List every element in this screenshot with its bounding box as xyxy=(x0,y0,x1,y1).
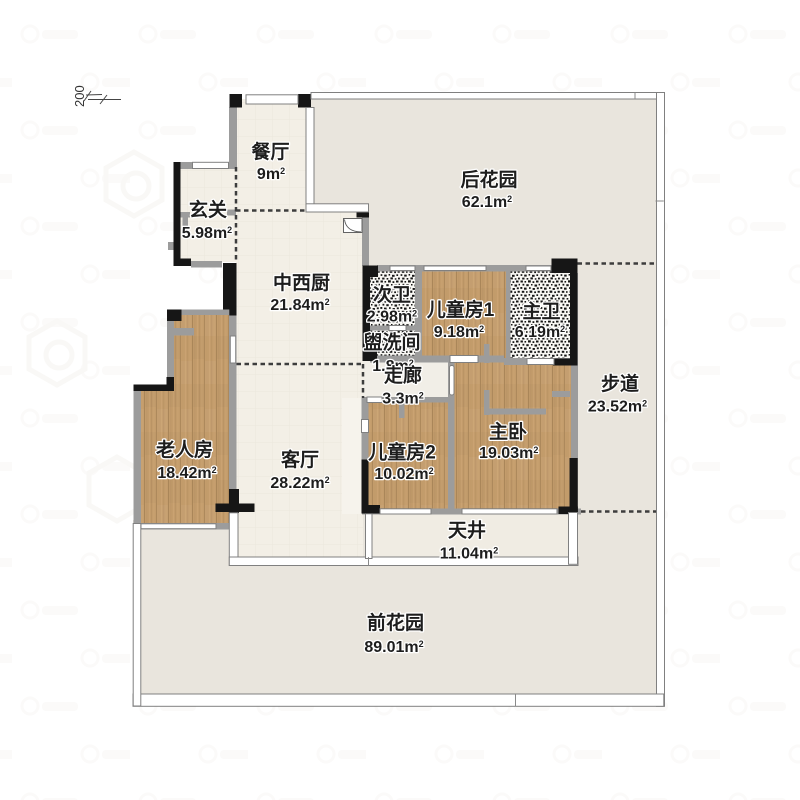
svg-text:28.22m2: 28.22m2 xyxy=(270,475,329,492)
svg-text:玄关: 玄关 xyxy=(189,198,227,221)
svg-text:步道: 步道 xyxy=(601,372,639,395)
svg-text:次卫: 次卫 xyxy=(373,283,411,306)
svg-text:走廊: 走廊 xyxy=(384,364,422,387)
svg-text:老人房: 老人房 xyxy=(156,438,213,461)
svg-text:主卧: 主卧 xyxy=(489,421,527,443)
svg-text:9.18m2: 9.18m2 xyxy=(434,324,484,341)
svg-text:3.3m2: 3.3m2 xyxy=(382,391,424,408)
svg-text:后花园: 后花园 xyxy=(460,168,517,191)
svg-text:6.19m2: 6.19m2 xyxy=(515,324,565,341)
svg-text:10.02m2: 10.02m2 xyxy=(374,466,433,483)
svg-text:中西厨: 中西厨 xyxy=(273,271,330,294)
svg-text:前花园: 前花园 xyxy=(367,611,424,634)
svg-text:19.03m2: 19.03m2 xyxy=(479,445,538,462)
svg-text:儿童房1: 儿童房1 xyxy=(426,298,495,321)
svg-text:2.98m2: 2.98m2 xyxy=(367,309,417,326)
svg-text:21.84m2: 21.84m2 xyxy=(270,297,329,314)
svg-text:200: 200 xyxy=(72,85,87,107)
svg-text:89.01m2: 89.01m2 xyxy=(364,639,423,656)
svg-text:盥洗间: 盥洗间 xyxy=(363,331,420,354)
svg-text:主卫: 主卫 xyxy=(522,301,560,323)
svg-text:23.52m2: 23.52m2 xyxy=(588,399,647,416)
svg-text:餐厅: 餐厅 xyxy=(251,140,289,163)
svg-text:客厅: 客厅 xyxy=(281,448,319,471)
svg-text:儿童房2: 儿童房2 xyxy=(367,441,436,464)
svg-text:5.98m2: 5.98m2 xyxy=(182,225,232,242)
svg-text:62.1m2: 62.1m2 xyxy=(462,194,512,211)
svg-text:18.42m2: 18.42m2 xyxy=(157,465,216,482)
svg-text:11.04m2: 11.04m2 xyxy=(440,546,498,563)
svg-text:天井: 天井 xyxy=(448,520,486,542)
